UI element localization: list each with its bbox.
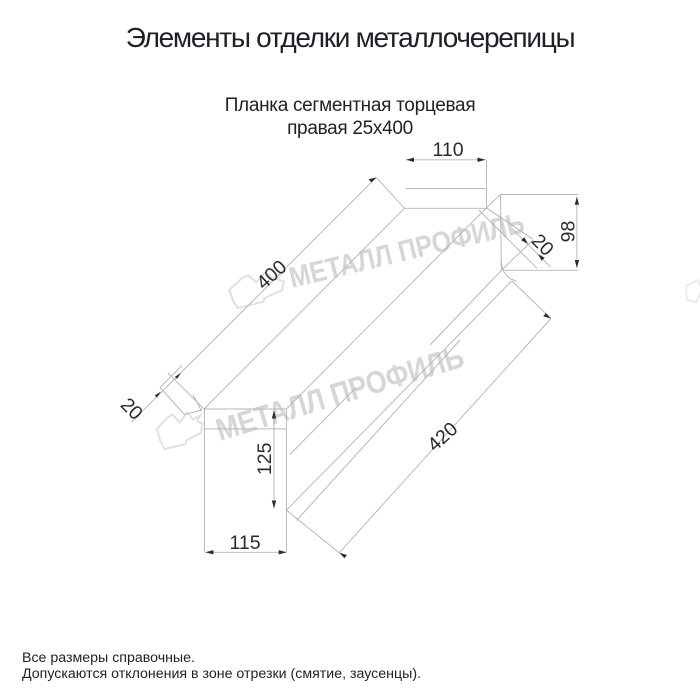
svg-text:20: 20	[527, 230, 558, 261]
svg-text:125: 125	[254, 442, 276, 475]
svg-text:115: 115	[229, 532, 260, 554]
svg-text:МЕТАЛЛ ПРОФИЛЬ: МЕТАЛЛ ПРОФИЛЬ	[212, 340, 468, 448]
svg-text:20: 20	[116, 394, 147, 425]
svg-text:98: 98	[558, 221, 580, 243]
svg-text:110: 110	[432, 139, 463, 161]
